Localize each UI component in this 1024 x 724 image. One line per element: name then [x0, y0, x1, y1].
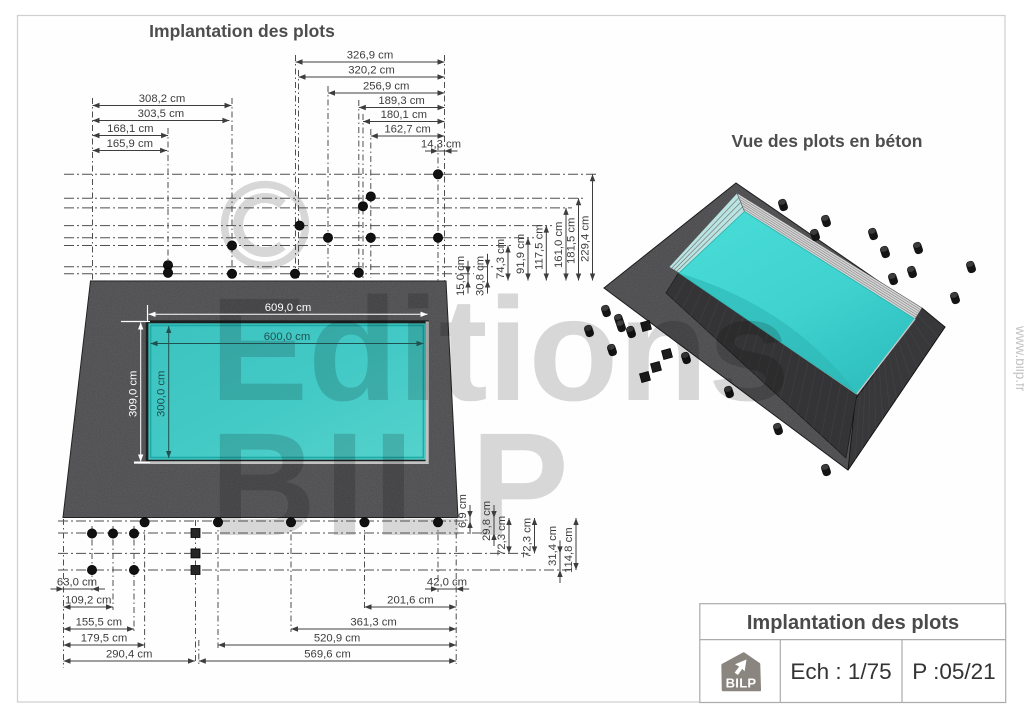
svg-text:361,3 cm: 361,3 cm: [350, 617, 396, 629]
svg-text:117,5 cm: 117,5 cm: [533, 224, 545, 270]
svg-text:P :05/21: P :05/21: [912, 659, 995, 684]
svg-text:BILP: BILP: [726, 676, 757, 691]
svg-text:300,0 cm: 300,0 cm: [156, 371, 168, 417]
svg-text:114,8 cm: 114,8 cm: [563, 527, 575, 573]
svg-text:14,3 cm: 14,3 cm: [421, 139, 461, 151]
svg-text:72,3 cm: 72,3 cm: [522, 518, 534, 558]
svg-text:Implantation des plots: Implantation des plots: [747, 612, 959, 634]
svg-text:Vue des plots en béton: Vue des plots en béton: [732, 131, 923, 151]
svg-text:609,0 cm: 609,0 cm: [265, 302, 311, 314]
svg-text:31,4 cm: 31,4 cm: [547, 526, 559, 566]
svg-text:161,0 cm: 161,0 cm: [553, 222, 565, 268]
svg-text:6,9 cm: 6,9 cm: [457, 494, 469, 528]
svg-text:162,7 cm: 162,7 cm: [384, 124, 430, 136]
svg-text:30,8 cm: 30,8 cm: [475, 256, 487, 296]
svg-text:600,0 cm: 600,0 cm: [264, 331, 310, 343]
svg-text:229,4 cm: 229,4 cm: [580, 216, 592, 262]
svg-text:201,6 cm: 201,6 cm: [387, 595, 433, 607]
svg-text:63,0 cm: 63,0 cm: [57, 577, 97, 589]
svg-text:15,0 cm: 15,0 cm: [455, 256, 467, 296]
svg-text:308,2 cm: 308,2 cm: [139, 93, 185, 105]
svg-text:569,6 cm: 569,6 cm: [304, 649, 350, 661]
svg-text:256,9 cm: 256,9 cm: [363, 81, 409, 93]
svg-text:520,9 cm: 520,9 cm: [314, 633, 360, 645]
svg-text:180,1 cm: 180,1 cm: [381, 109, 427, 121]
svg-text:29,8 cm: 29,8 cm: [481, 501, 493, 541]
svg-text:www.bilp.fr: www.bilp.fr: [1013, 325, 1024, 392]
svg-text:109,2 cm: 109,2 cm: [65, 595, 111, 607]
svg-text:303,5 cm: 303,5 cm: [138, 108, 184, 120]
svg-text:320,2 cm: 320,2 cm: [348, 65, 394, 77]
svg-text:91,9 cm: 91,9 cm: [515, 234, 527, 274]
svg-text:42,0 cm: 42,0 cm: [427, 577, 467, 589]
svg-text:290,4 cm: 290,4 cm: [106, 649, 152, 661]
svg-text:Implantation des plots: Implantation des plots: [149, 21, 335, 41]
svg-text:326,9 cm: 326,9 cm: [347, 50, 393, 62]
svg-text:165,9 cm: 165,9 cm: [107, 138, 153, 150]
svg-text:189,3 cm: 189,3 cm: [378, 95, 424, 107]
svg-text:Ech : 1/75: Ech : 1/75: [790, 659, 891, 684]
svg-text:72,3 cm: 72,3 cm: [496, 516, 508, 556]
svg-text:181,5 cm: 181,5 cm: [566, 218, 578, 264]
svg-text:155,5 cm: 155,5 cm: [76, 617, 122, 629]
svg-text:168,1 cm: 168,1 cm: [107, 123, 153, 135]
svg-text:74,3 cm: 74,3 cm: [495, 239, 507, 279]
svg-text:179,5 cm: 179,5 cm: [81, 633, 127, 645]
svg-text:309,0 cm: 309,0 cm: [128, 371, 140, 417]
